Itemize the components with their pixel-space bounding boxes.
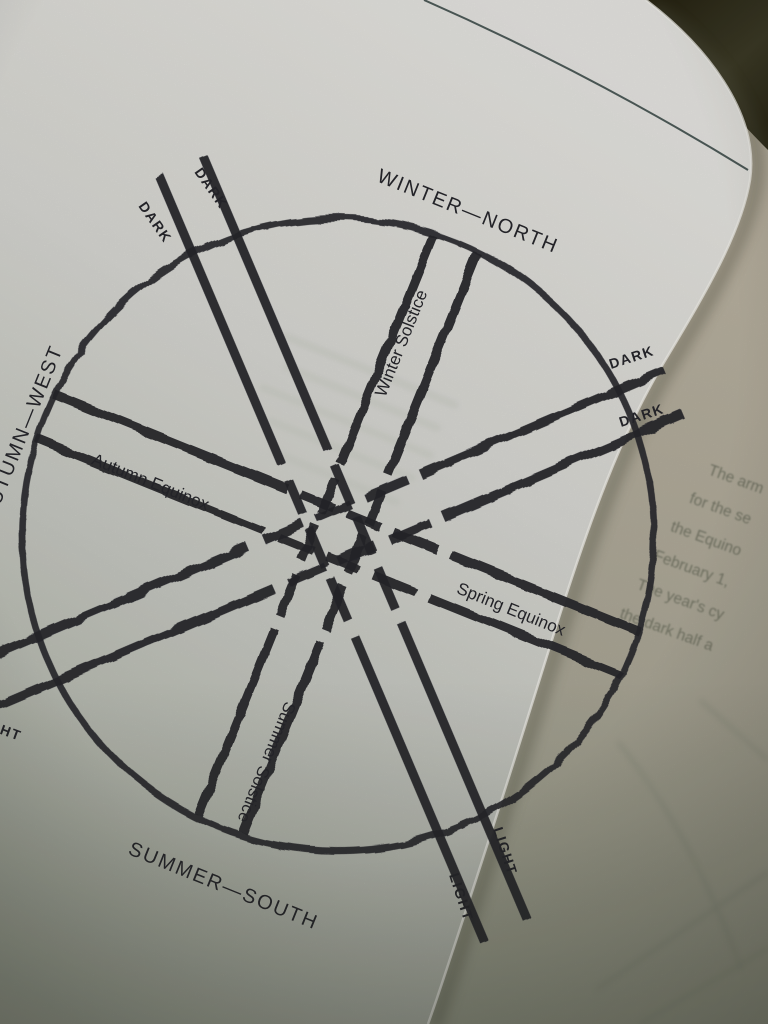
book-photo-canvas: The arm for the se the Equino February 1… — [0, 0, 768, 1024]
book-photo: The arm for the se the Equino February 1… — [0, 0, 768, 1024]
paper-grain — [0, 0, 768, 1024]
